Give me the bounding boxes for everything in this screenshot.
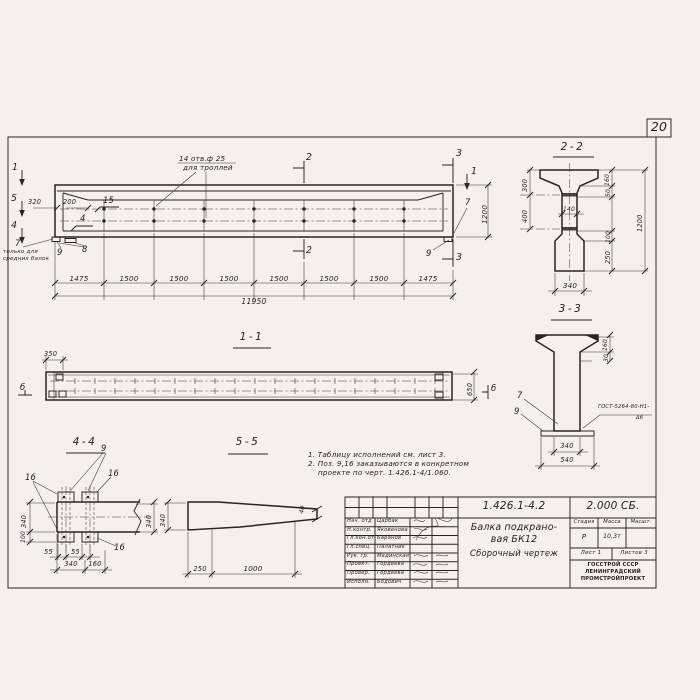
mass-value: 10,3т bbox=[603, 534, 621, 540]
marker-b-left: б bbox=[20, 383, 25, 391]
dim-label-55-b: 55 bbox=[71, 549, 80, 556]
dim-label-160-sec33: 160 bbox=[603, 339, 609, 351]
pos-label-16-right: 16 bbox=[108, 469, 119, 477]
pos-label-9-left: 9 bbox=[57, 248, 63, 256]
dim-label-50: 50 bbox=[606, 189, 612, 197]
dim-label-1200-sec: 1200 bbox=[637, 214, 644, 232]
dim-label-300: 300 bbox=[522, 179, 529, 192]
sheet-count: Листов 3 bbox=[620, 551, 648, 557]
dim-label-340-sec33: 340 bbox=[560, 443, 573, 450]
staff-name: Царбак bbox=[377, 519, 398, 524]
view-title-5-5: 5-5 bbox=[236, 437, 261, 448]
doc-code: 2.000 СБ. bbox=[586, 501, 639, 512]
note-line-1: 1. Таблицу исполнений см. лист 3. bbox=[308, 451, 446, 458]
weld-note-line2: Δ6 bbox=[636, 416, 643, 421]
view-marker-4: 4 bbox=[11, 221, 17, 230]
dim-label-140: 140 bbox=[563, 207, 575, 213]
dim-label-320: 320 bbox=[28, 199, 41, 206]
pos-label-4: 4 bbox=[80, 214, 86, 222]
dim-label-340-v44-bottom: 340 bbox=[64, 561, 77, 568]
section-marker-2-top: 2 bbox=[306, 153, 312, 162]
pos-label-8: 8 bbox=[82, 245, 88, 253]
dim-label-340-v55: 340 bbox=[160, 514, 167, 527]
staff-name: Гордеева bbox=[377, 562, 404, 567]
dim-label-200: 200 bbox=[63, 199, 76, 206]
dim-label-340-v44-right: 340 bbox=[146, 515, 153, 528]
org-line1: ГОССТРОЙ СССР bbox=[587, 563, 638, 568]
view-title-1-1: 1-1 bbox=[240, 332, 265, 343]
dim-label-540: 540 bbox=[560, 457, 573, 464]
pos-label-7-sec33: 7 bbox=[517, 391, 523, 399]
dim-segment-8: 1475 bbox=[418, 275, 437, 282]
dim-label-1200: 1200 bbox=[481, 205, 488, 224]
staff-role: Проект. bbox=[347, 562, 370, 567]
org-line2: ЛЕНИНГРАДСКИЙ bbox=[585, 570, 641, 575]
stage-value: Р bbox=[582, 533, 587, 540]
pos7-note-line2: средних балок bbox=[3, 257, 49, 263]
dim-label-100: 100 bbox=[606, 231, 612, 243]
dim-label-160: 160 bbox=[605, 174, 611, 186]
dim-label-1000: 1000 bbox=[243, 565, 262, 572]
dim-segment-7: 1500 bbox=[369, 275, 388, 282]
staff-name: Гордеева bbox=[377, 571, 404, 576]
signature-scribbles bbox=[413, 518, 452, 583]
pos-label-7-left: 7 bbox=[15, 239, 21, 247]
dim-label-250: 250 bbox=[605, 251, 612, 264]
view-1-1 bbox=[18, 348, 488, 403]
staff-role: Рук. гр. bbox=[347, 554, 369, 559]
org-line3: ПРОМСТРОЙПРОЕКТ bbox=[581, 577, 646, 582]
staff-name: Баранов bbox=[377, 536, 401, 541]
dim-segment-4: 1500 bbox=[219, 275, 238, 282]
section-3-3 bbox=[521, 320, 652, 470]
view-title-4-4: 4-4 bbox=[73, 437, 98, 448]
col-header-stage: Стадия bbox=[573, 520, 594, 525]
dim-segment-5: 1500 bbox=[269, 275, 288, 282]
doc-number: 1.426.1-4.2 bbox=[483, 501, 546, 512]
marker-b-right: б bbox=[491, 384, 496, 392]
section-title-3-3: 3-3 bbox=[559, 304, 584, 315]
view-5-5 bbox=[164, 454, 322, 578]
section-marker-3-bottom: 3 bbox=[456, 253, 462, 262]
drawing-title-line1: Балка подкрано- bbox=[471, 523, 558, 532]
col-header-mass: Масса bbox=[603, 520, 621, 525]
dim-label-250-v55: 250 bbox=[193, 566, 206, 573]
dim-label-400: 400 bbox=[522, 210, 529, 223]
page-number: 20 bbox=[651, 121, 667, 134]
weld-note-line1: ГОСТ-5264-80-Н1- bbox=[598, 405, 649, 410]
view-marker-1-left: 1 bbox=[12, 163, 18, 172]
drawing-title-line2: вая БК12 bbox=[491, 535, 538, 544]
pos-label-15: 15 bbox=[103, 196, 114, 204]
dim-label-total: 11950 bbox=[241, 298, 266, 306]
staff-name: Мединская bbox=[377, 554, 409, 559]
pos-label-7-right: 7 bbox=[465, 198, 471, 206]
pos7-note-line1: только для bbox=[3, 250, 38, 256]
dim-label-100-v44: 100 bbox=[21, 531, 27, 543]
holes-note-line2: для троллей bbox=[183, 164, 233, 171]
staff-name: Палатник bbox=[377, 545, 405, 550]
section-marker-2-bottom: 2 bbox=[306, 246, 312, 255]
sheet-number: Лист 1 bbox=[581, 551, 602, 557]
staff-role: Нач. отд bbox=[347, 519, 372, 524]
col-header-scale: Масшт. bbox=[630, 520, 651, 525]
pos-label-9-right: 9 bbox=[426, 249, 432, 257]
pos-label-16-bottom: 16 bbox=[114, 543, 125, 551]
view-marker-1-right: 1 bbox=[471, 167, 477, 176]
dim-label-55-a: 55 bbox=[44, 549, 53, 556]
pos-label-16-left: 16 bbox=[25, 473, 36, 481]
dim-label-650: 650 bbox=[467, 383, 474, 396]
dim-label-340-v44-left: 340 bbox=[21, 515, 28, 528]
dim-label-30: 30 bbox=[604, 354, 610, 362]
dim-label-160-v44: 160 bbox=[88, 561, 101, 568]
section-2-2 bbox=[520, 157, 648, 296]
pos-label-9-v44: 9 bbox=[101, 444, 107, 452]
note-line-2: 2. Поз. 9,16 заказываются в конкретном bbox=[308, 460, 469, 467]
staff-name: Бодович bbox=[377, 580, 401, 585]
drawing-sheet: 20 14 отв.ф 25 для троллей 2 2 3 3 1 1 5… bbox=[0, 0, 700, 700]
staff-role: Н.контр. bbox=[347, 528, 372, 533]
drawing-linework bbox=[0, 0, 700, 700]
pos-label-9-sec33: 9 bbox=[514, 407, 520, 415]
dim-label-340-sec22: 340 bbox=[563, 282, 577, 289]
dim-segment-3: 1500 bbox=[169, 275, 188, 282]
dim-segment-6: 1500 bbox=[319, 275, 338, 282]
staff-role: Исполн. bbox=[347, 580, 370, 585]
holes-note-line1: 14 отв.ф 25 bbox=[179, 155, 225, 162]
dim-label-350: 350 bbox=[44, 351, 57, 358]
drawing-title-line3: Сборочный чертеж bbox=[470, 549, 558, 557]
staff-role: Гл.кон.от bbox=[347, 536, 374, 541]
dim-segment-1: 1475 bbox=[69, 275, 88, 282]
section-title-2-2: 2-2 bbox=[561, 142, 586, 153]
note-line-3: проекте по черт. 1.426.1-4/1.060. bbox=[318, 469, 451, 476]
section-marker-3-top: 3 bbox=[456, 149, 462, 158]
staff-name: Яковенова bbox=[377, 528, 408, 533]
view-marker-5: 5 bbox=[11, 194, 17, 203]
dim-segment-2: 1500 bbox=[119, 275, 138, 282]
staff-role: Гл.спец. bbox=[347, 545, 371, 550]
staff-role: Провер. bbox=[347, 571, 370, 576]
